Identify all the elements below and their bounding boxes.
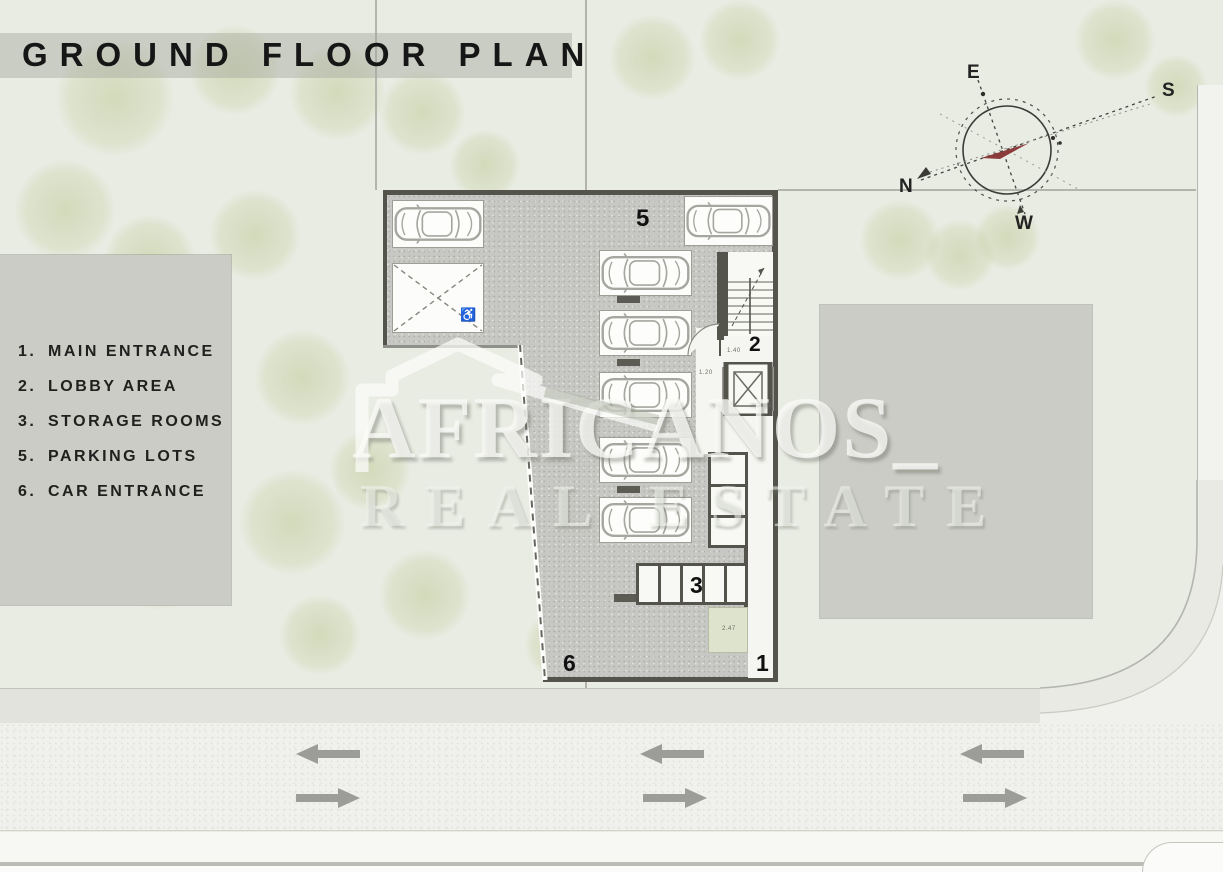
- road: [0, 723, 1223, 831]
- legend-item-label: MAIN ENTRANCE: [48, 343, 215, 360]
- building-wall-top: [383, 190, 778, 195]
- legend-item-number: 6.: [18, 483, 48, 501]
- dimension-label: 1.40: [727, 348, 741, 354]
- legend-item-number: 3.: [18, 413, 48, 431]
- legend-item-label: CAR ENTRANCE: [48, 483, 206, 500]
- tree-foliage: [280, 595, 360, 675]
- legend-item-main-entrance: 1.MAIN ENTRANCE: [18, 343, 224, 378]
- legend-item-parking-lots: 5.PARKING LOTS: [18, 448, 224, 483]
- ground-floor-plan-canvas: 1.MAIN ENTRANCE 2.LOBBY AREA 3.STORAGE R…: [0, 0, 1223, 872]
- tree-foliage: [700, 0, 780, 80]
- legend-item-label: LOBBY AREA: [48, 378, 178, 395]
- traffic-arrow-right: [643, 788, 707, 808]
- africanos-house-logo: [340, 330, 660, 480]
- wheelchair-icon: ♿: [460, 307, 476, 323]
- legend-item-label: STORAGE ROOMS: [48, 413, 224, 430]
- traffic-arrow-left: [296, 744, 360, 764]
- compass-north-label: N: [899, 176, 913, 197]
- compass-south-label: S: [1162, 80, 1175, 101]
- legend: 1.MAIN ENTRANCE 2.LOBBY AREA 3.STORAGE R…: [18, 343, 224, 518]
- building-wall-bottom: [543, 677, 778, 682]
- lobby-door-arc: [686, 322, 722, 362]
- tree-foliage: [240, 470, 345, 575]
- traffic-arrow-left: [960, 744, 1024, 764]
- legend-item-number: 2.: [18, 378, 48, 396]
- legend-item-label: PARKING LOTS: [48, 448, 198, 465]
- dimension-label: 1.20: [699, 370, 713, 376]
- traffic-arrow-right: [296, 788, 360, 808]
- staircase: [724, 252, 773, 338]
- legend-item-storage-rooms: 3.STORAGE ROOMS: [18, 413, 224, 448]
- side-road: [1197, 85, 1223, 540]
- marker-lobby-area: 2: [749, 333, 761, 357]
- marker-parking-lots: 5: [636, 205, 649, 233]
- room-divider: [680, 566, 683, 602]
- traffic-arrow-right: [963, 788, 1027, 808]
- sidewalk-lower: [0, 832, 1223, 862]
- marker-car-entrance: 6: [563, 650, 576, 677]
- room-divider: [724, 566, 727, 602]
- compass-west-label: W: [1015, 213, 1033, 232]
- car-top-view: [392, 200, 484, 248]
- tree-foliage: [255, 330, 350, 425]
- corner-sidewalk-notch: [1142, 842, 1223, 872]
- compass-east-label: E: [967, 62, 980, 83]
- marker-main-entrance: 1: [756, 650, 769, 677]
- marker-storage-rooms: 3: [690, 572, 703, 599]
- legend-item-lobby-area: 2.LOBBY AREA: [18, 378, 224, 413]
- legend-item-number: 1.: [18, 343, 48, 361]
- room-divider: [658, 566, 661, 602]
- building-wall-left: [383, 190, 387, 348]
- page-title: GROUND FLOOR PLAN: [22, 36, 596, 74]
- sidewalk-lower-strip: [0, 866, 1223, 872]
- legend-item-car-entrance: 6.CAR ENTRANCE: [18, 483, 224, 518]
- compass-rose: E S N W: [885, 52, 1195, 232]
- dimension-label: 2.47: [722, 626, 736, 632]
- car-top-view: [684, 196, 773, 246]
- legend-item-number: 5.: [18, 448, 48, 466]
- tree-foliage: [380, 550, 470, 640]
- tree-foliage: [380, 70, 465, 155]
- tree-foliage: [15, 160, 115, 260]
- lot-boundary-line: [585, 0, 587, 190]
- watermark-tagline: REAL ESTATE: [360, 472, 1008, 541]
- traffic-arrow-left: [640, 744, 704, 764]
- lot-boundary-line: [375, 0, 377, 190]
- tree-foliage: [610, 15, 695, 100]
- wheel-stop: [614, 594, 638, 602]
- wheel-stop: [617, 296, 640, 303]
- car-top-view: [599, 250, 692, 296]
